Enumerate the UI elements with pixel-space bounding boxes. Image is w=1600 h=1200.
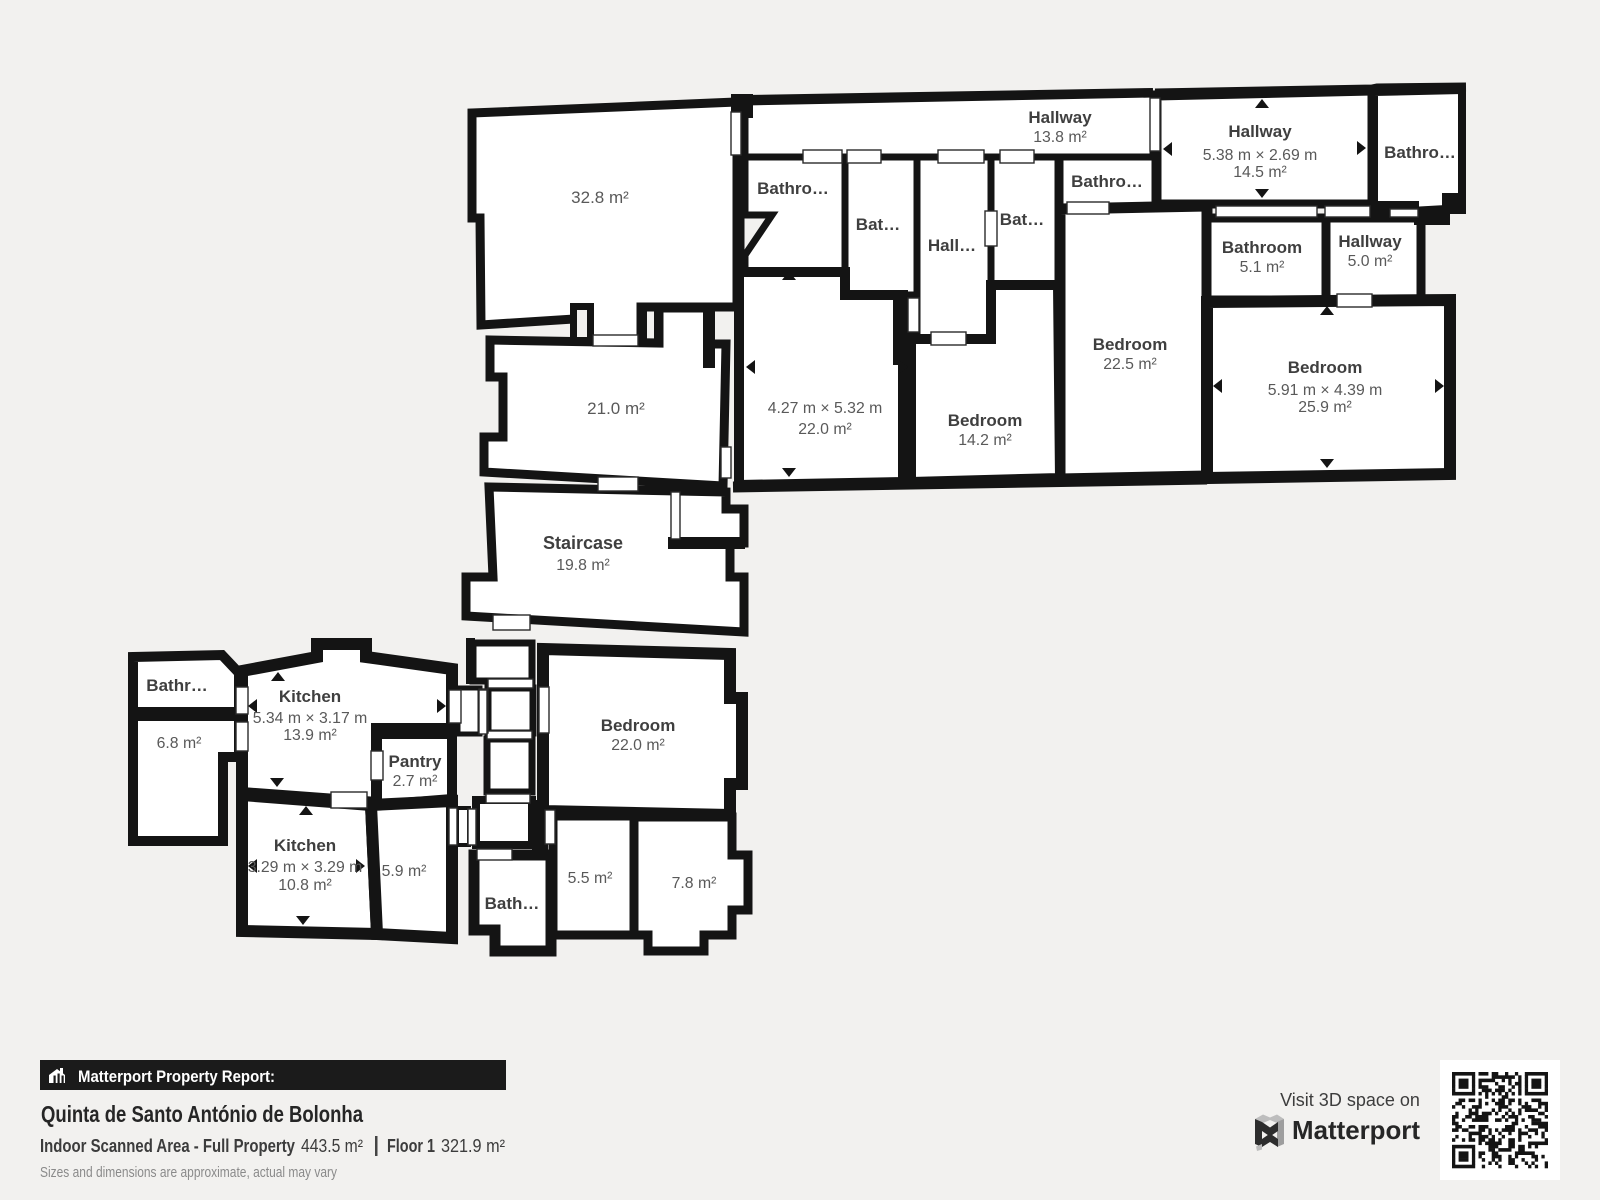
svg-text:Bathro…: Bathro…: [1071, 172, 1143, 191]
svg-text:5.5 m²: 5.5 m²: [568, 870, 613, 887]
svg-text:Floor 1: Floor 1: [387, 1136, 435, 1156]
svg-text:5.0 m²: 5.0 m²: [1348, 253, 1393, 270]
svg-text:13.9 m²: 13.9 m²: [283, 727, 337, 744]
svg-text:6.8 m²: 6.8 m²: [157, 735, 202, 752]
svg-text:Bedroom: Bedroom: [601, 716, 676, 735]
svg-text:Hall…: Hall…: [928, 236, 976, 255]
svg-text:Bath…: Bath…: [485, 894, 540, 913]
svg-text:Quinta de Santo António de Bol: Quinta de Santo António de Bolonha: [41, 1101, 363, 1127]
svg-text:5.1 m²: 5.1 m²: [1240, 259, 1285, 276]
svg-text:321.9 m²: 321.9 m²: [441, 1136, 505, 1156]
svg-text:Pantry: Pantry: [389, 752, 442, 771]
svg-text:14.2 m²: 14.2 m²: [958, 432, 1012, 449]
svg-text:Matterport Property Report:: Matterport Property Report:: [78, 1068, 275, 1086]
svg-text:5.91 m × 4.39 m: 5.91 m × 4.39 m: [1268, 382, 1383, 399]
svg-text:Bedroom: Bedroom: [948, 411, 1023, 430]
svg-text:Bat…: Bat…: [856, 215, 900, 234]
svg-text:Visit 3D space on: Visit 3D space on: [1280, 1090, 1420, 1110]
svg-text:32.8 m²: 32.8 m²: [571, 188, 629, 207]
svg-text:Bedroom: Bedroom: [1093, 335, 1168, 354]
svg-text:13.8 m²: 13.8 m²: [1033, 129, 1087, 146]
svg-text:Kitchen: Kitchen: [274, 836, 336, 855]
svg-text:21.0 m²: 21.0 m²: [587, 399, 645, 418]
svg-text:Bedroom: Bedroom: [1288, 358, 1363, 377]
svg-text:Bathro…: Bathro…: [1384, 143, 1456, 162]
svg-text:Bathr…: Bathr…: [146, 676, 207, 695]
svg-text:10.8 m²: 10.8 m²: [278, 877, 332, 894]
svg-text:Indoor Scanned Area - Full Pro: Indoor Scanned Area - Full Property: [40, 1136, 295, 1156]
svg-text:Hallway: Hallway: [1338, 232, 1402, 251]
svg-text:Bathroom: Bathroom: [1222, 238, 1302, 257]
svg-text:443.5 m²: 443.5 m²: [301, 1136, 363, 1156]
svg-text:Staircase: Staircase: [543, 533, 623, 553]
svg-text:Hallway: Hallway: [1028, 108, 1092, 127]
svg-text:5.9 m²: 5.9 m²: [382, 863, 427, 880]
svg-text:22.5 m²: 22.5 m²: [1103, 356, 1157, 373]
svg-text:14.5 m²: 14.5 m²: [1233, 164, 1287, 181]
svg-text:19.8 m²: 19.8 m²: [556, 557, 610, 574]
svg-text:4.27 m × 5.32 m: 4.27 m × 5.32 m: [768, 400, 883, 417]
svg-text:Sizes and dimensions are appro: Sizes and dimensions are approximate, ac…: [40, 1165, 338, 1181]
svg-text:25.9 m²: 25.9 m²: [1298, 399, 1352, 416]
svg-text:22.0 m²: 22.0 m²: [798, 421, 852, 438]
svg-text:7.8 m²: 7.8 m²: [672, 875, 717, 892]
svg-text:5.38 m × 2.69 m: 5.38 m × 2.69 m: [1203, 147, 1318, 164]
svg-text:2.7 m²: 2.7 m²: [393, 773, 438, 790]
svg-text:Matterport: Matterport: [1292, 1115, 1420, 1145]
svg-text:Hallway: Hallway: [1228, 122, 1292, 141]
svg-text:3.29 m × 3.29 m: 3.29 m × 3.29 m: [248, 859, 363, 876]
svg-text:22.0 m²: 22.0 m²: [611, 737, 665, 754]
svg-text:Bathro…: Bathro…: [757, 179, 829, 198]
svg-text:5.34 m × 3.17 m: 5.34 m × 3.17 m: [253, 710, 368, 727]
svg-text:Kitchen: Kitchen: [279, 687, 341, 706]
svg-text:Bat…: Bat…: [1000, 210, 1044, 229]
